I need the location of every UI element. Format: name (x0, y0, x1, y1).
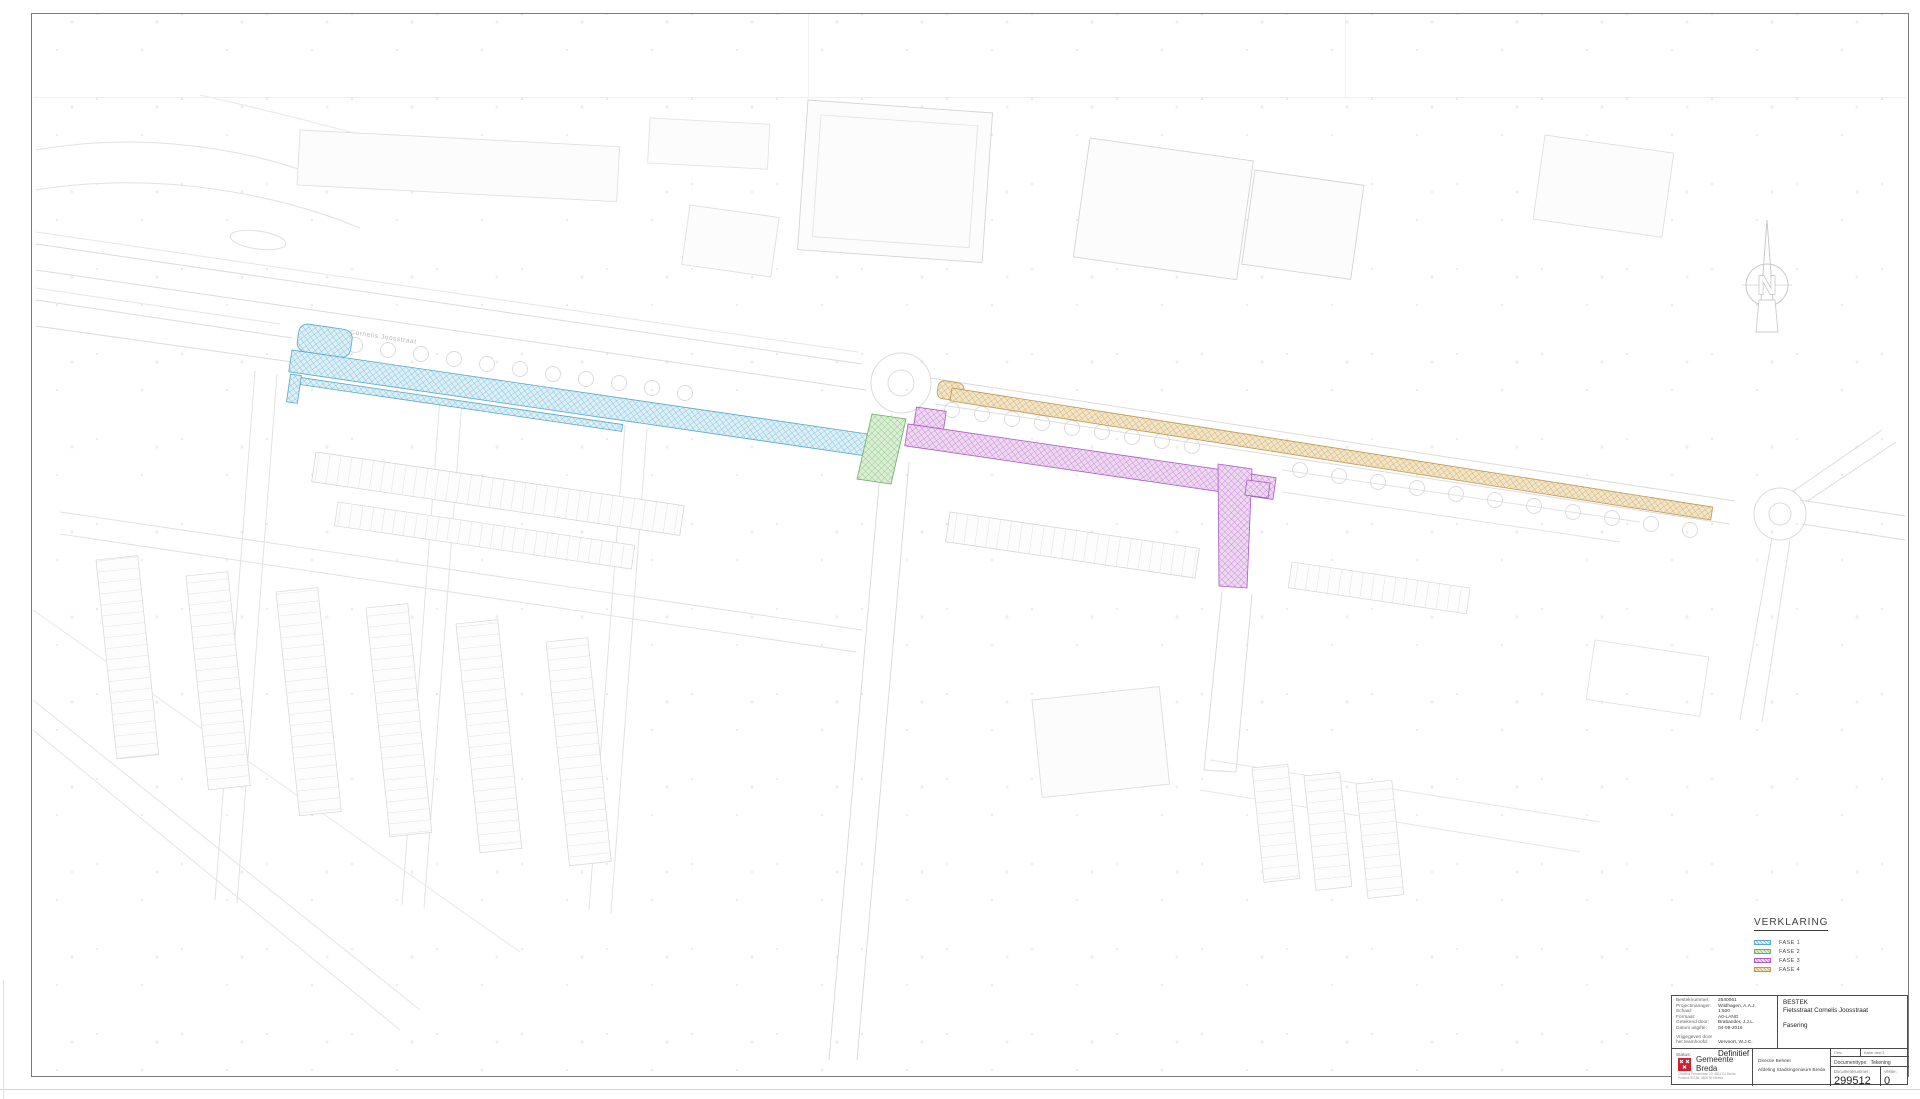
legend-item-label: FASE 4 (1779, 967, 1800, 973)
info-label: Vrijgegeven door het teamhoofd: (1676, 1035, 1718, 1046)
document-number-label: Documentnummer: (1834, 1069, 1880, 1074)
legend-item-label: FASE 1 (1779, 940, 1800, 946)
legend-item-label: FASE 2 (1779, 949, 1800, 955)
document-meta-left: Omv. (1831, 1049, 1861, 1056)
document-number-value: 299512 (1834, 1075, 1880, 1087)
legend: VERKLARING FASE 1 FASE 2 FASE 3 FASE 4 (1754, 912, 1884, 974)
project-title-line1: BESTEK (1783, 999, 1909, 1007)
north-arrow-letter: N (1758, 270, 1777, 300)
title-block-project: BESTEK Fietsstraat Cornelis Joosstraat F… (1778, 996, 1909, 1049)
document-type-label: Documenttype: (1834, 1060, 1868, 1066)
organization-name: Gemeente Breda (1696, 1055, 1752, 1073)
document-version-value: 0 (1884, 1075, 1909, 1087)
project-title-line3: Fasering (1783, 1022, 1909, 1030)
info-label: Datum uitgifte: (1676, 1026, 1718, 1032)
document-type-value: Tekening (1871, 1060, 1891, 1066)
title-block-document: Omv. Kader deel 2 Documenttype:Tekening … (1831, 1049, 1909, 1086)
info-value: 04-08-2016 (1718, 1026, 1743, 1032)
legend-title: VERKLARING (1754, 917, 1828, 931)
title-block-department: Directie Beheer Afdeling Stadsingenieurs… (1753, 1049, 1831, 1086)
document-version-label: Versie: (1884, 1069, 1909, 1074)
legend-item-fase4: FASE 4 (1754, 965, 1884, 974)
legend-item-label: FASE 3 (1779, 958, 1800, 964)
map-canvas: Cornelis Joosstraat N (0, 0, 1920, 1099)
department-line1: Directie Beheer (1758, 1057, 1830, 1066)
legend-item-fase3: FASE 3 (1754, 956, 1884, 965)
gemeente-breda-logo-icon (1678, 1058, 1691, 1071)
fase4-swatch (1754, 967, 1771, 972)
info-value: Vervoort, W.J.C. (1718, 1040, 1753, 1046)
department-line2: Afdeling Stadsingenieurs Breda (1758, 1066, 1830, 1075)
legend-item-fase2: FASE 2 (1754, 947, 1884, 956)
title-block-info: Besteknummer:2540061 Projectmanager:Wild… (1672, 996, 1778, 1049)
title-block-organization: Gemeente Breda Claudius Prinsenlaan 10, … (1672, 1049, 1753, 1086)
organization-address-line2: Postbus 90156, 4800 RH Breda (1678, 1076, 1735, 1080)
fase2-swatch (1754, 949, 1771, 954)
title-block: Besteknummer:2540061 Projectmanager:Wild… (1671, 995, 1908, 1085)
legend-item-fase1: FASE 1 (1754, 938, 1884, 947)
document-meta-right: Kader deel 2 (1861, 1049, 1884, 1056)
project-title-line2: Fietsstraat Cornelis Joosstraat (1783, 1007, 1909, 1015)
fase1-swatch (1754, 940, 1771, 945)
fase3-swatch (1754, 958, 1771, 963)
